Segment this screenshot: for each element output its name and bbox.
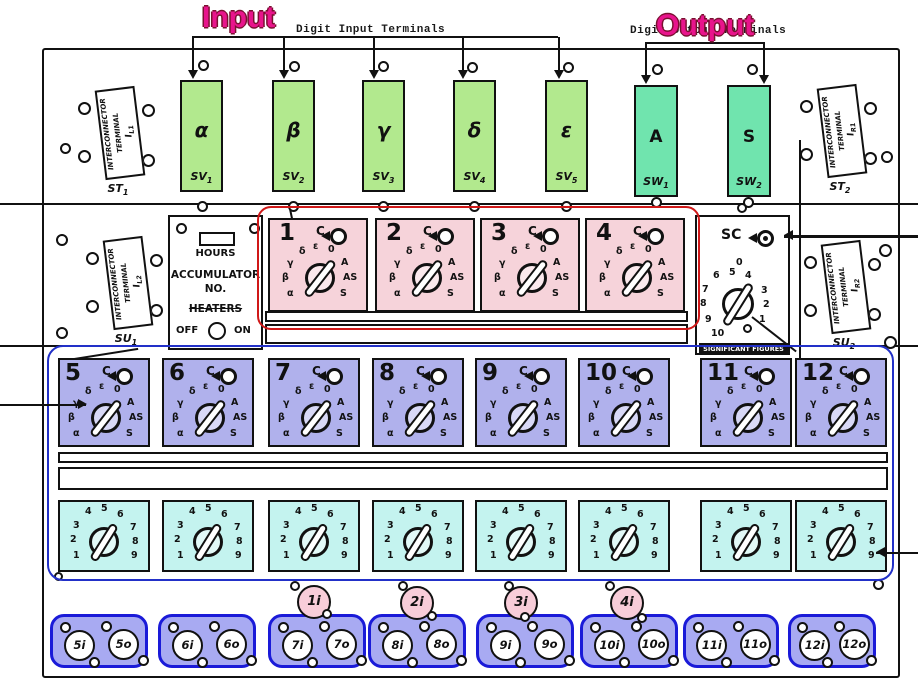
strip-hole[interactable] [486, 622, 497, 633]
sc-position-label: 3 [761, 285, 768, 296]
jack-label: 7o [328, 631, 355, 657]
panel-line [784, 235, 918, 238]
caption-main: ST [107, 182, 122, 195]
accumulator-no-label: NO. [170, 283, 261, 295]
strip-hole[interactable] [527, 621, 538, 632]
terminal-id: SW2 [729, 175, 769, 190]
mounting-hole [86, 300, 99, 313]
arrowhead-icon [641, 75, 651, 84]
program-output-jack[interactable]: 9o [534, 629, 565, 660]
panel-hole [881, 151, 893, 163]
program-input-jack[interactable]: 9i [490, 630, 521, 661]
strip-hole[interactable] [407, 657, 418, 668]
bracket-terminal-hole[interactable] [289, 61, 300, 72]
jack-label: 8i [384, 632, 411, 658]
eniac-accumulator-panel-diagram: Input Digit Input Terminals Output Digit… [0, 0, 918, 693]
jack-label: 8o [428, 631, 455, 657]
program-output-jack[interactable]: 11o [740, 629, 771, 660]
strip-hole[interactable] [60, 622, 71, 633]
program-output-jack[interactable]: 12o [839, 629, 870, 660]
sc-position-label: 10 [711, 328, 724, 339]
sc-position-label: 8 [700, 298, 707, 309]
strip-hole[interactable] [797, 622, 808, 633]
sc-terminal-hole[interactable] [743, 324, 752, 333]
strip-hole[interactable] [356, 655, 367, 666]
panel-hole [879, 244, 892, 257]
terminal-id: SV4 [455, 170, 494, 185]
interconnector-caption: ST2 [798, 180, 882, 195]
program-input-jack[interactable]: 10i [594, 630, 625, 661]
panel-line [192, 36, 558, 38]
jack-label: 10i [596, 632, 623, 658]
terminal-strip: 10i10o [580, 614, 678, 668]
panel-line [283, 37, 285, 72]
sc-position-label: 9 [705, 314, 712, 325]
program-output-jack[interactable]: 10o [638, 629, 669, 660]
panel-hole [56, 327, 68, 339]
terminal-letter: ε [547, 118, 586, 142]
arrowhead-icon [458, 70, 468, 79]
bracket-terminal-hole[interactable] [652, 64, 663, 75]
panel-line [558, 37, 560, 72]
jack-label: 10o [640, 631, 667, 657]
hours-label: HOURS [170, 248, 261, 259]
mounting-hole [78, 102, 91, 115]
digit-input-terminal-block: δSV4 [453, 80, 496, 192]
program-input-jack[interactable]: 12i [799, 630, 830, 661]
jack-label: 9i [492, 632, 519, 658]
interconnector-group: INTERCONNECTORTERMINALIL1ST1 [76, 86, 160, 198]
arrowhead-icon [188, 70, 198, 79]
sc-position-label: 5 [729, 267, 736, 278]
jack-label: 12i [801, 632, 828, 658]
program-group-annotation-red [257, 206, 700, 330]
jack-label: 5o [110, 631, 137, 657]
digit-input-terminal-block: αSV1 [180, 80, 223, 192]
panel-hole [737, 203, 747, 213]
interconnector-text: INTERCONNECTORTERMINALIR2 [823, 242, 868, 331]
interconnector-terminal: INTERCONNECTORTERMINALIR1 [817, 84, 868, 178]
bracket-terminal-hole[interactable] [467, 62, 478, 73]
interconnector-terminal: INTERCONNECTORTERMINALIL1 [95, 86, 146, 180]
mounting-hole [800, 100, 813, 113]
interconnector-text: INTERCONNECTORTERMINALIL1 [97, 88, 142, 177]
terminal-letter: β [274, 118, 313, 142]
program-input-jack[interactable]: 6i [172, 630, 203, 661]
terminal-strip: 7i7o [268, 614, 366, 668]
program-input-jack[interactable]: 11i [696, 630, 727, 661]
program-output-jack[interactable]: 7o [326, 629, 357, 660]
strip-hole[interactable] [101, 621, 112, 632]
terminal-id-sub: 1 [663, 181, 669, 190]
sc-label: SC [721, 227, 741, 243]
jack-label: 5i [66, 632, 93, 658]
terminal-id: SV5 [547, 170, 586, 185]
jack-label: 11i [698, 632, 725, 658]
panel-hole [637, 613, 647, 623]
pointer-dot-icon [763, 236, 768, 241]
terminal-id-sub: 2 [299, 176, 305, 185]
digit-input-terminal-block: γSV3 [362, 80, 405, 192]
program-output-jack[interactable]: 8o [426, 629, 457, 660]
strip-hole[interactable] [278, 622, 289, 633]
strip-hole[interactable] [619, 657, 630, 668]
panel-hole [290, 581, 300, 591]
mounting-hole [78, 150, 91, 163]
digit-output-terminal-block: ASW1 [634, 85, 678, 197]
terminal-id-main: SW [643, 175, 663, 188]
terminal-id-main: SV [372, 170, 388, 183]
mounting-hole [804, 304, 817, 317]
jack-label: 7i [284, 632, 311, 658]
interconnector-id-main: I [124, 133, 134, 138]
terminal-id: SW1 [636, 175, 676, 190]
program-group-annotation-blue [47, 345, 894, 581]
bracket-terminal-hole[interactable] [747, 64, 758, 75]
interconnector-id-sub: R2 [853, 278, 862, 288]
digit-input-terminals-title: Digit Input Terminals [296, 24, 445, 36]
terminal-id-sub: 4 [480, 176, 486, 185]
strip-hole[interactable] [419, 621, 430, 632]
sc-position-label: 4 [745, 270, 752, 281]
arrowhead-icon [784, 230, 793, 240]
terminal-id-main: SV [463, 170, 479, 183]
interconnector-caption: ST1 [76, 182, 160, 197]
mounting-hole [150, 254, 163, 267]
program-input-jack[interactable]: 8i [382, 630, 413, 661]
program-output-jack[interactable]: 5o [108, 629, 139, 660]
strip-hole[interactable] [590, 622, 601, 633]
strip-hole[interactable] [693, 622, 704, 633]
output-annotation: Output [656, 9, 754, 43]
terminal-letter: A [636, 127, 676, 147]
strip-hole[interactable] [515, 657, 526, 668]
sc-position-label: 2 [763, 299, 770, 310]
panel-line [462, 37, 464, 72]
strip-hole[interactable] [307, 657, 318, 668]
strip-hole[interactable] [564, 655, 575, 666]
strip-hole[interactable] [721, 657, 732, 668]
digit-terminal-hole[interactable] [197, 201, 208, 212]
bracket-terminal-hole[interactable] [378, 61, 389, 72]
caption-sub: 1 [123, 188, 129, 197]
digit-input-terminal-block: βSV2 [272, 80, 315, 192]
program-output-jack[interactable]: 6o [216, 629, 247, 660]
arrowhead-icon [759, 75, 769, 84]
digit-input-terminal-block: εSV5 [545, 80, 588, 192]
accumulator-info-block: HOURSACCUMULATORNO.HEATERSOFFON [168, 215, 263, 350]
strip-hole[interactable] [168, 622, 179, 633]
accumulator-label: ACCUMULATOR [170, 269, 261, 281]
interconnector-id-sub: R1 [849, 122, 858, 132]
panel-line [373, 37, 375, 72]
interconnector-text: INTERCONNECTORTERMINALIL2 [105, 238, 150, 327]
jack-label: 9o [536, 631, 563, 657]
hours-meter [199, 232, 235, 246]
mounting-hole [868, 258, 881, 271]
bracket-terminal-hole[interactable] [563, 62, 574, 73]
terminal-strip: 11i11o [683, 614, 779, 668]
jack-label: 6o [218, 631, 245, 657]
strip-hole[interactable] [456, 655, 467, 666]
panel-hole [322, 609, 332, 619]
heaters-on-label: ON [234, 325, 251, 336]
jack-label: 12o [841, 631, 868, 657]
terminal-id: SV2 [274, 170, 313, 185]
sc-position-label: 0 [736, 257, 743, 268]
terminal-id-sub: 1 [207, 176, 213, 185]
interconnector-id-main: I [132, 283, 142, 288]
mounting-hole [86, 252, 99, 265]
terminal-id: SV1 [182, 170, 221, 185]
panel-hole [504, 581, 514, 591]
sc-position-label: 7 [702, 284, 709, 295]
interconnector-id-sub: L2 [135, 275, 144, 285]
terminal-id-main: SV [282, 170, 298, 183]
terminal-id-sub: 3 [389, 176, 395, 185]
caption-main: SU [115, 332, 132, 345]
panel-line [0, 404, 86, 406]
heaters-label: HEATERS [170, 303, 261, 315]
arrowhead-icon [369, 70, 379, 79]
interconnector-terminal: INTERCONNECTORTERMINALIL2 [103, 236, 154, 330]
program-input-label: 4i [612, 588, 642, 617]
strip-hole[interactable] [246, 655, 257, 666]
strip-hole[interactable] [834, 621, 845, 632]
program-input-jack[interactable]: 7i [282, 630, 313, 661]
strip-hole[interactable] [378, 622, 389, 633]
heaters-toggle[interactable] [208, 322, 226, 340]
terminal-strip: 6i6o [158, 614, 256, 668]
jack-label: 11o [742, 631, 769, 657]
strip-hole[interactable] [769, 655, 780, 666]
interconnector-text: INTERCONNECTORTERMINALIR1 [819, 86, 864, 175]
terminal-id-main: SW [736, 175, 756, 188]
interconnector-group: INTERCONNECTORTERMINALIR2SU2 [802, 240, 886, 352]
panel-line [645, 43, 647, 77]
terminal-id-sub: 5 [572, 176, 578, 185]
interconnector-group: INTERCONNECTORTERMINALIR1ST2 [798, 84, 882, 196]
caption-sub: 2 [845, 186, 851, 195]
strip-hole[interactable] [197, 657, 208, 668]
arrowhead-icon [554, 70, 564, 79]
bracket-terminal-hole[interactable] [198, 60, 209, 71]
pointer-triangle-icon [748, 233, 757, 243]
panel-line [763, 43, 765, 77]
interconnector-id-sub: L1 [127, 125, 136, 135]
terminal-letter: γ [364, 118, 403, 142]
heaters-off-label: OFF [176, 325, 198, 336]
jack-label: 6i [174, 632, 201, 658]
input-annotation: Input [202, 1, 275, 35]
terminal-strip: 8i8o [368, 614, 466, 668]
mounting-hole [864, 102, 877, 115]
arrowhead-icon [279, 70, 289, 79]
panel-hole [398, 581, 408, 591]
arrowhead-icon [876, 547, 885, 557]
strip-hole[interactable] [733, 621, 744, 632]
strip-hole[interactable] [319, 621, 330, 632]
strip-hole[interactable] [209, 621, 220, 632]
terminal-id-sub: 2 [756, 181, 762, 190]
mounting-hole [800, 148, 813, 161]
terminal-strip: 9i9o [476, 614, 574, 668]
strip-hole[interactable] [866, 655, 877, 666]
panel-hole [520, 612, 530, 622]
terminal-strip: 5i5o [50, 614, 148, 668]
panel-line [192, 37, 194, 72]
terminal-id-main: SV [555, 170, 571, 183]
terminal-letter: δ [455, 118, 494, 142]
mounting-hole [804, 256, 817, 269]
digit-output-terminal-block: SSW2 [727, 85, 771, 197]
panel-hole [427, 611, 437, 621]
mounting-hole [176, 223, 187, 234]
strip-hole[interactable] [138, 655, 149, 666]
terminal-letter: α [182, 118, 221, 142]
terminal-id-main: SV [190, 170, 206, 183]
sc-position-label: 6 [713, 270, 720, 281]
interconnector-group: INTERCONNECTORTERMINALIL2SU1 [84, 236, 168, 348]
panel-hole [56, 234, 68, 246]
strip-hole[interactable] [668, 655, 679, 666]
program-input-jack[interactable]: 5i [64, 630, 95, 661]
terminal-strip: 12i12o [788, 614, 876, 668]
interconnector-terminal: INTERCONNECTORTERMINALIR2 [821, 240, 872, 334]
terminal-id: SV3 [364, 170, 403, 185]
mounting-hole [142, 104, 155, 117]
panel-hole [605, 581, 615, 591]
terminal-letter: S [729, 127, 769, 147]
caption-main: ST [829, 180, 844, 193]
strip-hole[interactable] [822, 657, 833, 668]
strip-hole[interactable] [89, 657, 100, 668]
panel-hole [60, 143, 71, 154]
arrowhead-icon [78, 399, 87, 409]
